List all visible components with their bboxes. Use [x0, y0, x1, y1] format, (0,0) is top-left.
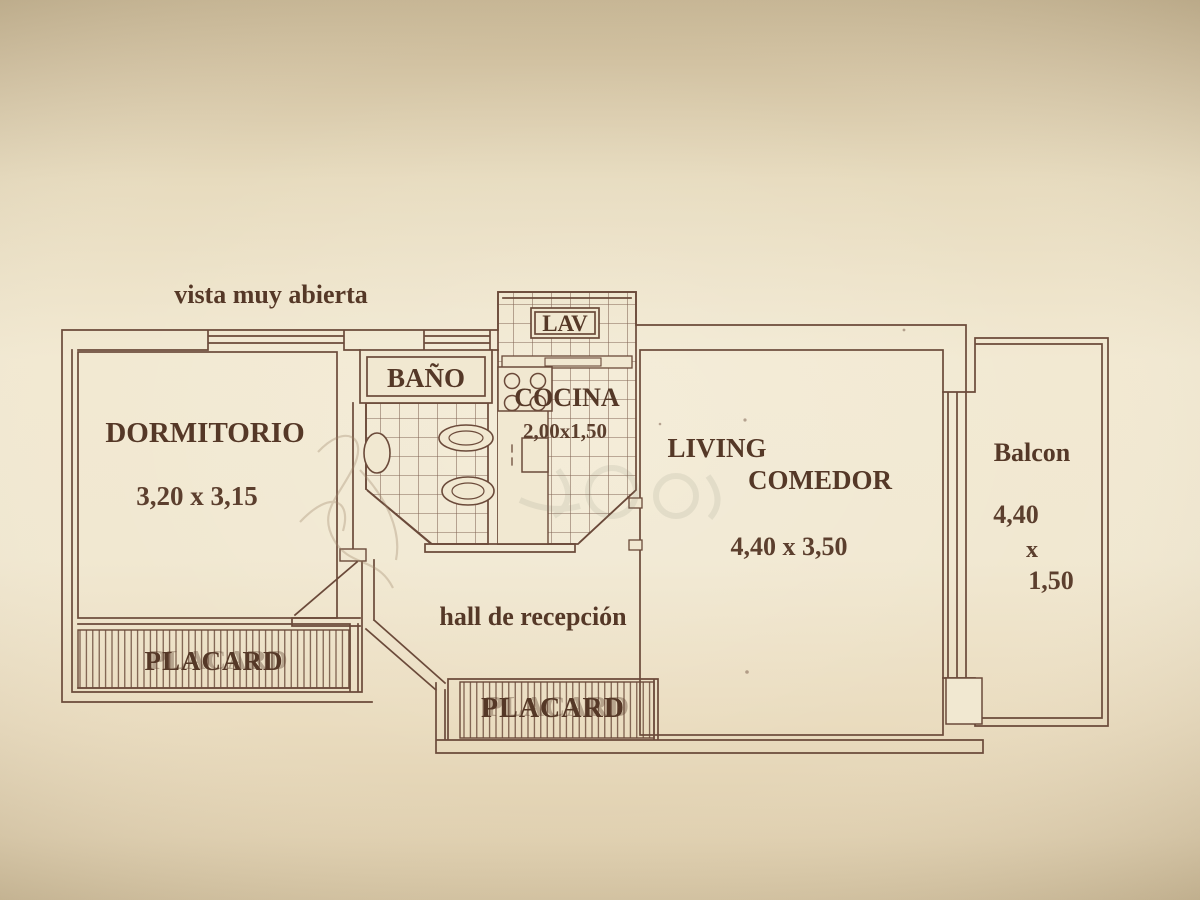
label-placard-hall: PLACARD — [481, 693, 625, 724]
dims-living: 4,40 x 3,50 — [731, 532, 848, 561]
label-hall: hall de recepción — [439, 602, 627, 631]
room-label-living: LIVING — [667, 433, 766, 463]
dims-dormitorio: 3,20 x 3,15 — [136, 481, 258, 511]
living-door-jamb-bottom — [629, 540, 642, 550]
dims-balcon-depth: 1,50 — [1028, 566, 1074, 595]
dims-balcon-width: 4,40 — [993, 500, 1039, 529]
room-label-balcon: Balcon — [994, 438, 1071, 467]
room-label-cocina: COCINA — [514, 383, 620, 412]
dims-cocina: 2,00x1,50 — [523, 419, 607, 443]
bidet-outer — [442, 477, 494, 505]
kitchen-sink — [522, 438, 548, 472]
room-label-dormitorio: DORMITORIO — [105, 417, 304, 449]
floor-plan-svg: vista muy abierta DORMITORIO 3,20 x 3,15… — [0, 0, 1200, 900]
label-placard-dormitorio: PLACARD — [145, 646, 284, 676]
room-label-comedor: COMEDOR — [748, 465, 892, 495]
floor-plan-photo: vista muy abierta DORMITORIO 3,20 x 3,15… — [0, 0, 1200, 900]
toilet — [364, 433, 390, 473]
room-label-bano: BAÑO — [387, 363, 465, 393]
bath-sink-outer — [439, 425, 493, 451]
balcony-pier — [946, 678, 982, 724]
dims-balcon-sep: x — [1026, 537, 1038, 563]
room-label-lav: LAV — [542, 311, 588, 336]
note-vista: vista muy abierta — [174, 280, 368, 309]
